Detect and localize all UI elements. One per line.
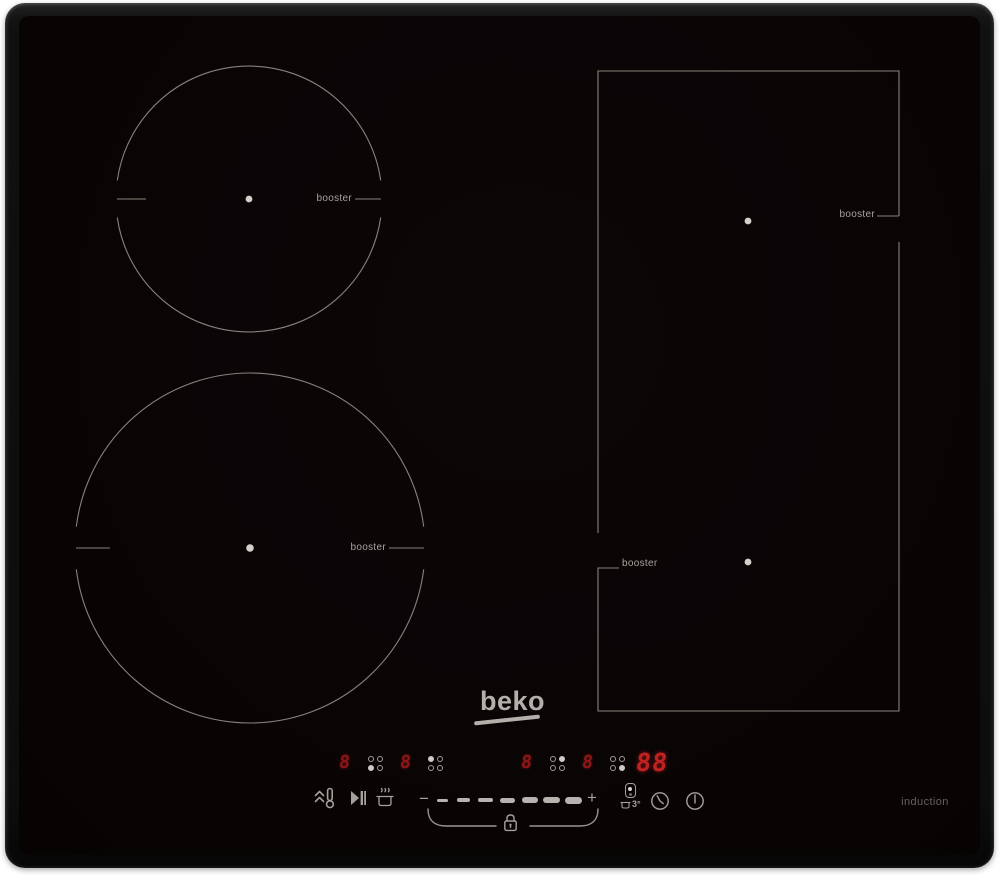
play-pause-icon (351, 791, 366, 805)
booster-label-flex-top: booster (833, 209, 875, 221)
clock-icon (652, 793, 668, 809)
heat-up-button[interactable] (314, 787, 337, 809)
booster-label-bottom-left: booster (344, 542, 386, 554)
power-on-off-button[interactable] (685, 791, 705, 811)
slider-segment[interactable] (437, 799, 448, 802)
booster-label-flex-bottom: booster (622, 558, 664, 570)
slider-segment[interactable] (543, 797, 560, 804)
booster-label-top-left: booster (310, 193, 352, 205)
timer-button[interactable] (650, 791, 670, 811)
induction-label: induction (895, 796, 955, 808)
zone-power-display: 8 (581, 753, 594, 773)
zone-power-display: 8 (520, 753, 533, 773)
keep-warm-pot-icon (377, 789, 393, 806)
pause-resume-button[interactable] (350, 790, 366, 807)
keep-warm-button[interactable] (376, 786, 394, 808)
zone-position-indicator (428, 756, 443, 771)
chevron-up-icon (316, 792, 324, 796)
zone-position-indicator (550, 756, 565, 771)
zone-power-display: 8 (399, 753, 412, 773)
slider-segment[interactable] (500, 798, 515, 803)
hob-body (5, 3, 994, 868)
slider-segment[interactable] (457, 798, 470, 802)
zone-power-display: 8 (338, 753, 351, 773)
thermometer-icon (328, 789, 333, 801)
timer-display: 88 (634, 750, 669, 776)
slider-segment[interactable] (522, 797, 538, 803)
power-icon (687, 793, 703, 809)
zone-position-indicator (610, 756, 625, 771)
slider-segment[interactable] (565, 797, 582, 804)
flex-zone-select-icon[interactable] (625, 783, 636, 798)
simmer-pot-icon (620, 799, 631, 810)
ceramic-glass-surface (19, 16, 980, 855)
beko-logo: beko (480, 686, 550, 717)
slider-segment[interactable] (478, 798, 493, 803)
lock-icon[interactable] (502, 812, 519, 833)
product-photo-induction-hob: booster booster booster booster beko 8 8… (0, 0, 1000, 876)
zone-position-indicator (368, 756, 383, 771)
simmer-preset-label: 3° (632, 799, 641, 809)
